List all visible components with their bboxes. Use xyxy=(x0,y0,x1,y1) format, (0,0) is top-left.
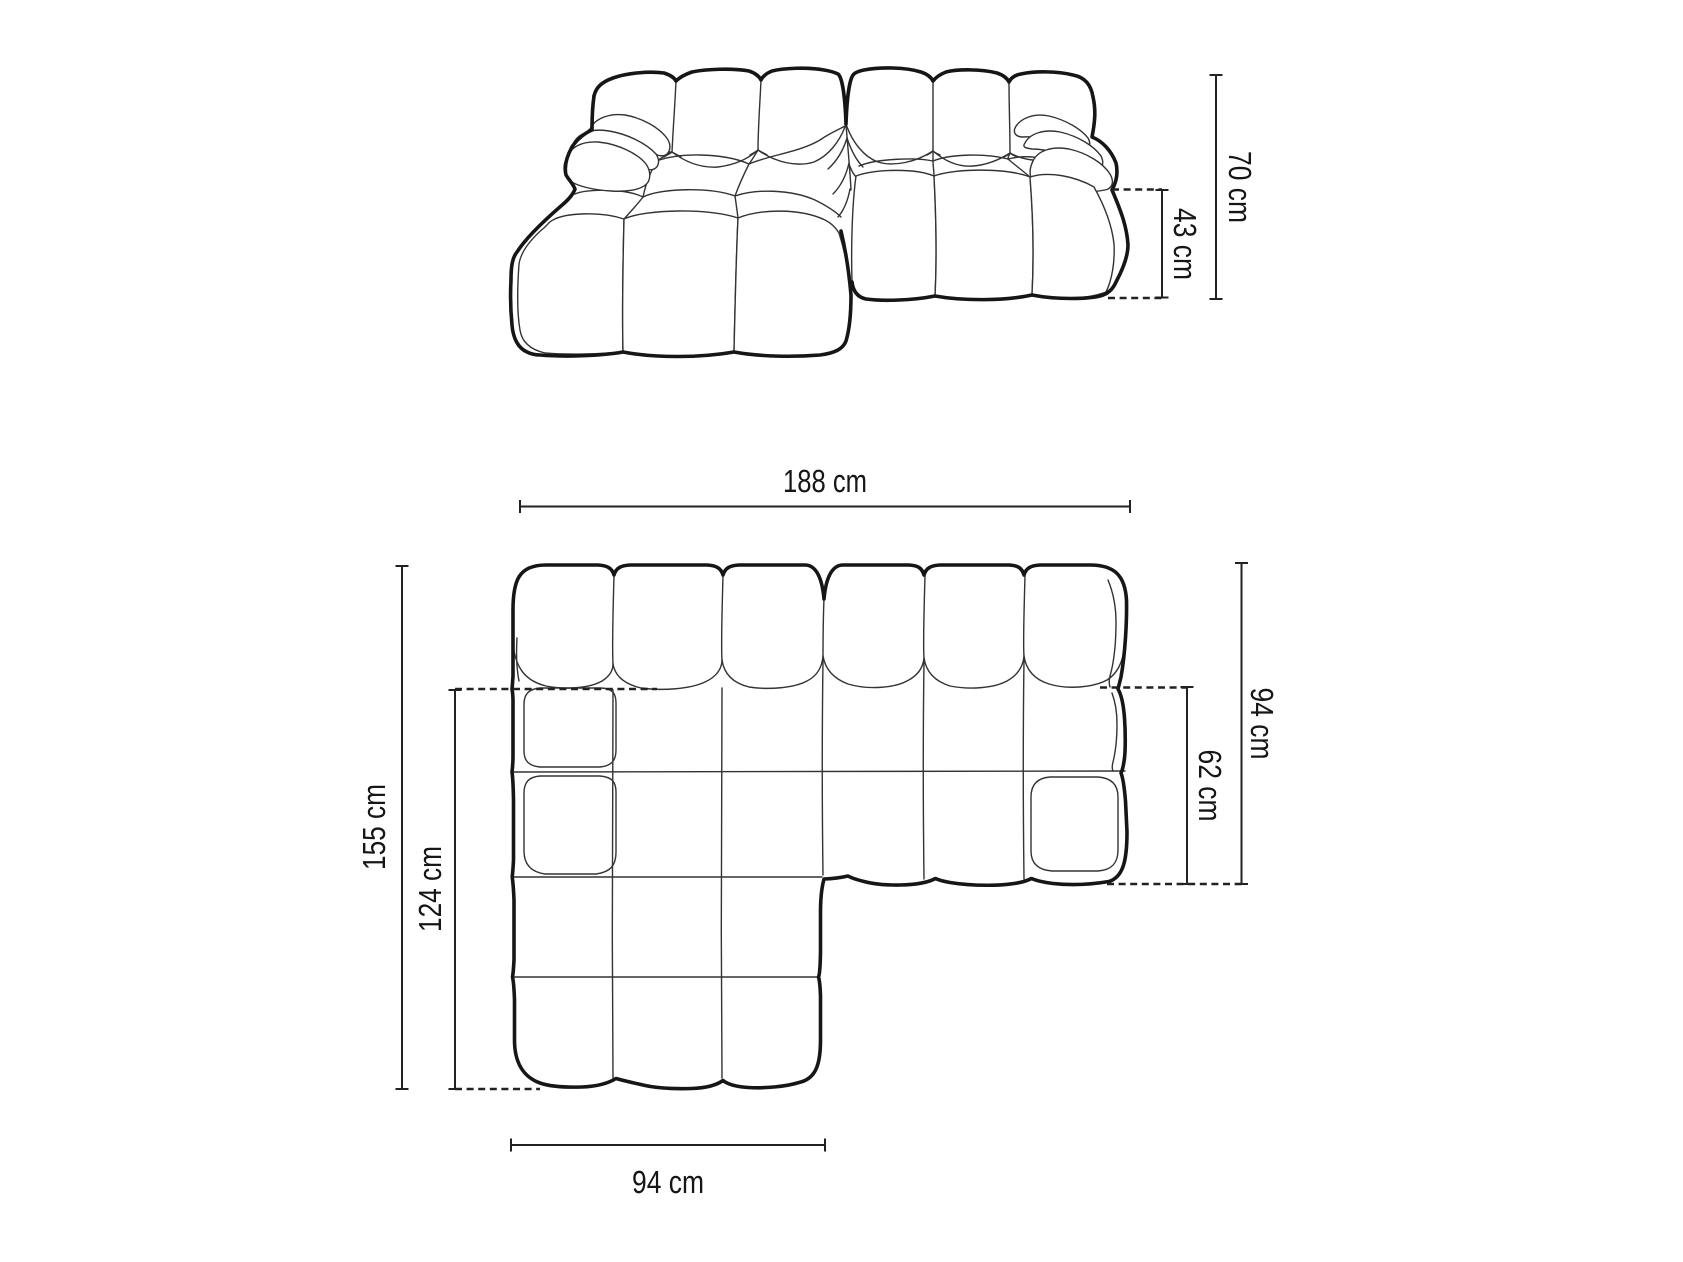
svg-text:124 cm: 124 cm xyxy=(412,846,448,932)
svg-text:94 cm: 94 cm xyxy=(632,1164,704,1200)
svg-text:70 cm: 70 cm xyxy=(1222,151,1258,223)
svg-text:188 cm: 188 cm xyxy=(783,463,867,499)
svg-text:155 cm: 155 cm xyxy=(356,784,392,870)
svg-text:43 cm: 43 cm xyxy=(1167,208,1203,280)
svg-text:94 cm: 94 cm xyxy=(1244,688,1280,760)
svg-text:62 cm: 62 cm xyxy=(1192,750,1228,822)
